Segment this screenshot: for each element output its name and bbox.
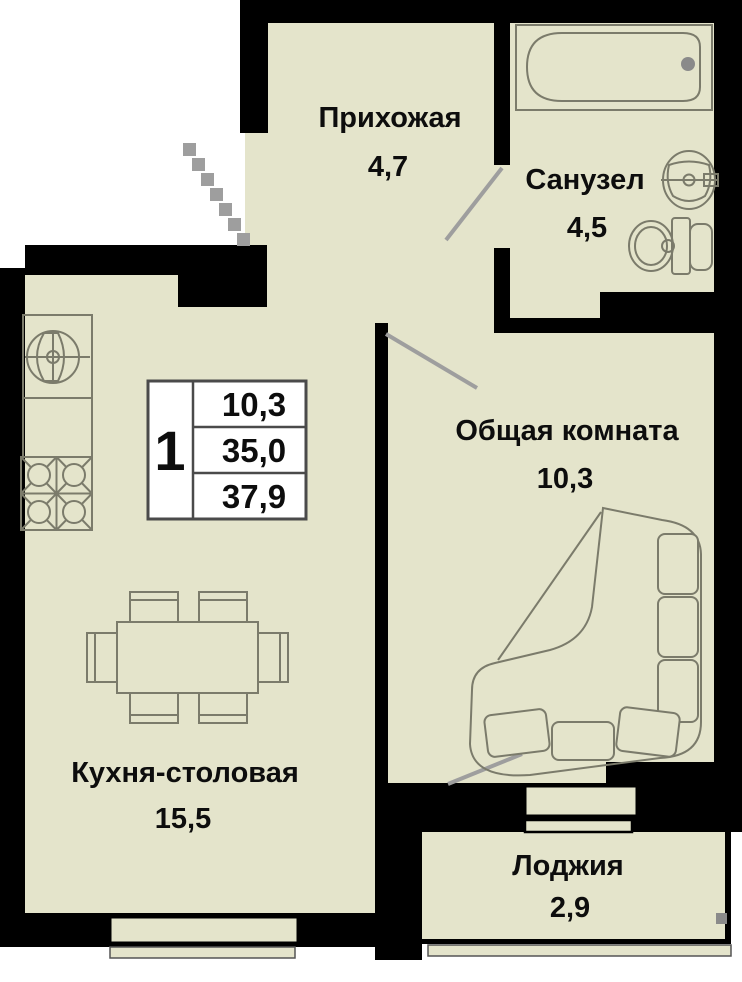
stove-icon (21, 457, 92, 530)
wall-bath-hall-lower (494, 248, 510, 322)
wall-bath-bottom-right (600, 292, 742, 333)
wall-hallway-left-upper (240, 0, 268, 133)
legend-row-area: 35,0 (222, 432, 286, 469)
wall-top (240, 0, 742, 23)
living-label: Общая комната (455, 415, 679, 447)
wall-bath-bottom-left (494, 318, 606, 333)
hallway-label: Прихожая (318, 102, 461, 134)
bathroom-label: Санузел (525, 164, 644, 196)
wall-loggia-bottom-thin (416, 939, 731, 944)
wall-right-outer (714, 23, 742, 762)
legend-apartment-number: 1 (154, 419, 185, 482)
loggia-window-sill (525, 820, 632, 832)
loggia-corner-marker (716, 913, 727, 924)
loggia-outer-ledge (428, 945, 731, 956)
hallway-area: 4,7 (368, 151, 408, 183)
entrance-steps-icon (183, 143, 250, 246)
legend-table: 1 10,3 35,0 37,9 (148, 381, 306, 519)
kitchen-label: Кухня-столовая (71, 757, 299, 789)
legend-row-total-area: 37,9 (222, 478, 286, 515)
loggia-window-icon (525, 786, 637, 816)
bathtub-drain (681, 57, 695, 71)
table-top (117, 622, 258, 693)
wall-left-outer (0, 268, 25, 915)
kitchen-area: 15,5 (155, 803, 211, 835)
floor-plan-page: 1 10,3 35,0 37,9 Прихожая 4,7 Санузел 4,… (0, 0, 742, 982)
wall-loggia-right-thin (725, 815, 731, 944)
loggia-area: 2,9 (550, 892, 590, 924)
legend-row-living-area: 10,3 (222, 386, 286, 423)
living-area: 10,3 (537, 463, 593, 495)
floor-plan-canvas: 1 10,3 35,0 37,9 Прихожая 4,7 Санузел 4,… (0, 0, 742, 982)
bathroom-area: 4,5 (567, 212, 607, 244)
wall-bath-hall-upper (494, 23, 510, 165)
loggia-label: Лоджия (512, 850, 623, 882)
wall-kitchen-living-divider (375, 323, 388, 783)
kitchen-window-sill (110, 947, 295, 958)
wall-kitchen-top (25, 245, 178, 275)
wall-kitchen-top-step (178, 245, 267, 307)
kitchen-window-icon (110, 917, 298, 943)
